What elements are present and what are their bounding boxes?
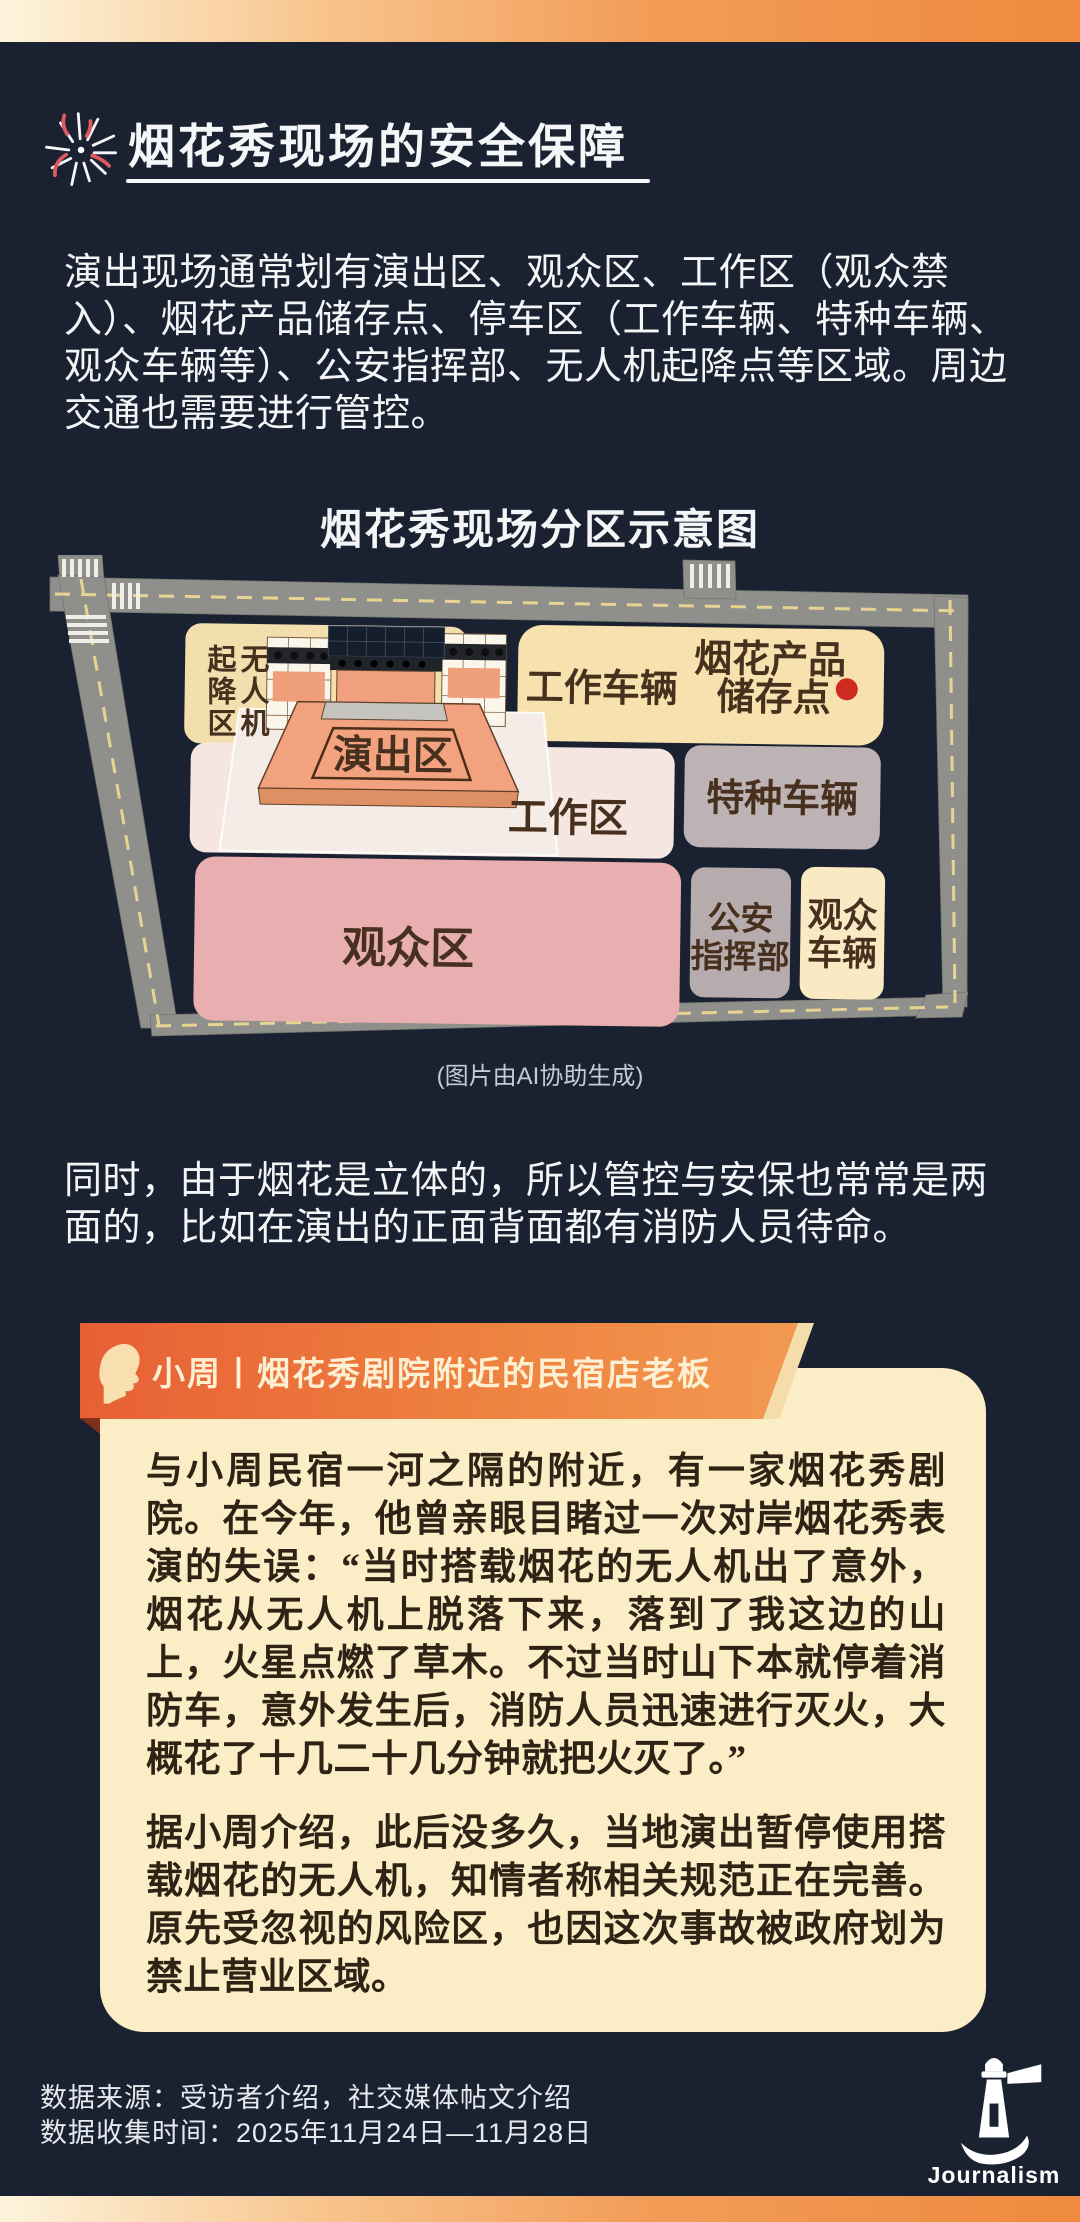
label-audience-area: 观众区: [342, 923, 475, 974]
label-police-line1: 公安: [707, 899, 774, 937]
label-audience-vehicles-line2: 车辆: [807, 934, 878, 974]
footer-data-source: 数据来源：受访者介绍，社交媒体帖文介绍: [40, 2076, 572, 2115]
lighthouse-logo-text: Journalism: [922, 2162, 1066, 2189]
title-underline: [126, 179, 650, 183]
diagram-caption: (图片由AI协助生成): [0, 1056, 1080, 1091]
label-storage-line2: 储存点: [716, 676, 831, 720]
lighthouse-logo-icon: [938, 2050, 1050, 2166]
quote-banner-title: 小周丨烟花秀剧院附近的民宿店老板: [152, 1347, 712, 1395]
top-accent-bar: [0, 0, 1080, 42]
label-audience-vehicles-line1: 观众: [807, 896, 878, 936]
fireworks-icon: [40, 104, 124, 196]
site-zoning-diagram: 演出区 工作车辆 烟花产品 储存点 工作区 特种车辆 观众区 公安 指挥部 观众…: [0, 555, 1080, 1055]
label-police-line2: 指挥部: [690, 937, 790, 975]
body-paragraph: 同时，由于烟花是立体的，所以管控与安保也常常是两面的，比如在演出的正面背面都有消…: [64, 1158, 1024, 1252]
footer-data-period: 数据收集时间：2025年11月24日—11月28日: [40, 2111, 592, 2150]
intro-paragraph: 演出现场通常划有演出区、观众区、工作区（观众禁入）、烟花产品储存点、停车区（工作…: [64, 250, 1024, 438]
label-work-vehicles: 工作车辆: [525, 667, 678, 711]
bottom-accent-bar: [0, 2196, 1080, 2222]
banner-fold: [80, 1418, 100, 1434]
label-special-vehicles: 特种车辆: [706, 777, 859, 821]
label-stage-zone: 演出区: [333, 733, 454, 779]
person-icon: [96, 1336, 142, 1406]
page-title: 烟花秀现场的安全保障: [128, 108, 628, 177]
label-work-area: 工作区: [508, 796, 629, 842]
diagram-title: 烟花秀现场分区示意图: [0, 496, 1080, 557]
road-corner: [916, 992, 968, 1018]
infographic-page: 烟花秀现场的安全保障 演出现场通常划有演出区、观众区、工作区（观众禁入）、烟花产…: [0, 0, 1080, 2222]
quote-paragraph-2: 据小周介绍，此后没多久，当地演出暂停使用搭载烟花的无人机，知情者称相关规范正在完…: [146, 1810, 946, 2002]
quote-card-body: 与小周民宿一河之隔的附近，有一家烟花秀剧院。在今年，他曾亲眼目睹过一次对岸烟花秀…: [146, 1448, 946, 2002]
quote-paragraph-1: 与小周民宿一河之隔的附近，有一家烟花秀剧院。在今年，他曾亲眼目睹过一次对岸烟花秀…: [146, 1448, 946, 1784]
quote-banner: 小周丨烟花秀剧院附近的民宿店老板: [80, 1323, 798, 1419]
label-drone-zone: 无人机起降区: [198, 644, 268, 748]
